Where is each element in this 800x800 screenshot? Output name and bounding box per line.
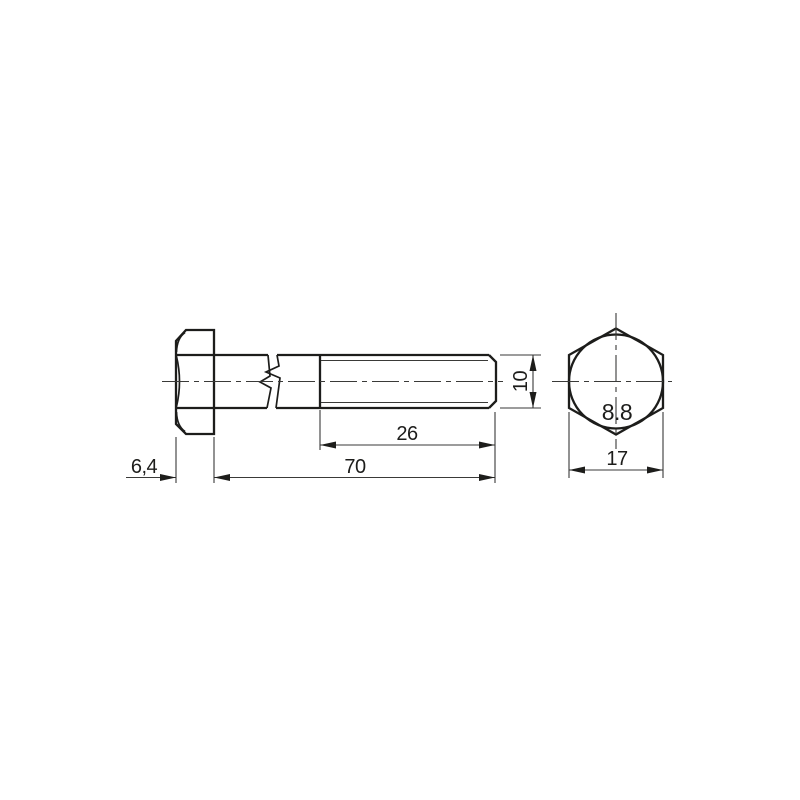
arrowhead-right (479, 474, 495, 481)
drawing-canvas: 6,4 70 26 (0, 0, 800, 800)
thread-length-label: 26 (396, 423, 418, 445)
arrowhead-right (479, 442, 495, 449)
strength-grade-marking: 8.8 (602, 399, 632, 425)
head-chamfer-arc-bottom (177, 412, 186, 432)
head-height-label: 6,4 (131, 456, 158, 478)
end-view: 8.8 17 (552, 313, 672, 478)
dimension-diameter: 10 (500, 355, 541, 408)
side-view (162, 330, 503, 434)
arrowhead-up (530, 355, 537, 371)
bolt-technical-drawing: 6,4 70 26 (0, 0, 800, 800)
arrowhead-right (647, 467, 663, 474)
dimension-shank-length: 70 (214, 412, 495, 483)
shank-length-label: 70 (344, 456, 366, 478)
dimensions-side-view: 6,4 70 26 (126, 355, 541, 483)
across-flats-label: 17 (606, 448, 628, 470)
arrowhead-right (160, 474, 176, 481)
arrowhead-left (569, 467, 585, 474)
arrowhead-left (214, 474, 230, 481)
dimension-thread-length: 26 (320, 410, 495, 450)
diameter-label: 10 (510, 371, 532, 393)
arrowhead-left (320, 442, 336, 449)
arrowhead-down (530, 392, 537, 408)
dimension-head-height: 6,4 (126, 437, 176, 483)
head-chamfer-arc-top (177, 333, 186, 353)
